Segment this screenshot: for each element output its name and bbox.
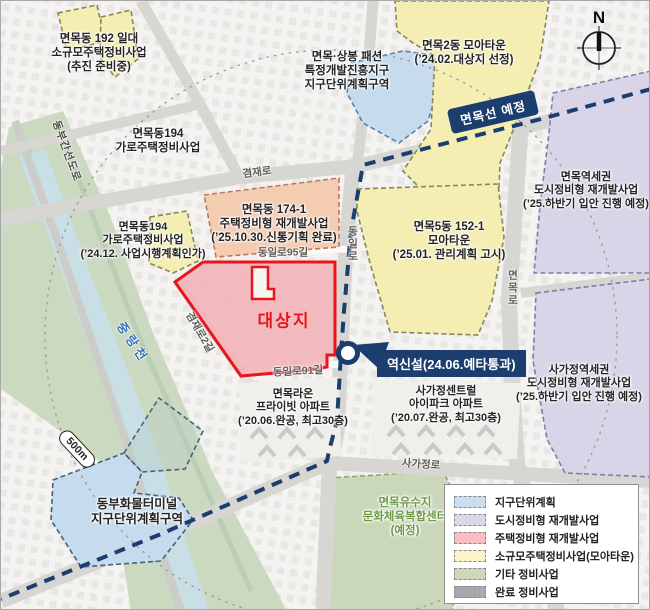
legend-label: 주택정비형 재개발사업 (495, 530, 599, 546)
legend-swatch (454, 514, 486, 526)
label-myeonmok-station-redev: 면목역세권도시정비형 재개발사업(’25.하반기 입안 진행 예정) (523, 171, 649, 211)
legend-swatch (454, 496, 486, 508)
label-line: (예정) (363, 524, 448, 538)
label-myeonmok194-b: 면목동194가로주택정비사업(’24.12. 사업시행계획인가) (81, 221, 206, 261)
label-line: 면목동194 (116, 127, 201, 141)
compass-north-label: N (593, 8, 605, 28)
label-line: (’25.10.30.신통기획 완료) (211, 231, 337, 245)
label-myeonmok2-moatown: 면목2동 모아타운(’24.02.대상지 선정) (415, 39, 514, 67)
label-line: (’25.01. 관리계획 고시) (393, 248, 506, 262)
label-line: (’20.07.완공, 최고30층) (391, 412, 501, 425)
label-line: 지구단위계획구역 (91, 512, 183, 527)
legend-label: 기타 정비사업 (495, 566, 559, 582)
label-line: 면목동 192 일대 (51, 32, 146, 46)
target-site-label: 대상지 (258, 307, 311, 332)
label-line: 사가정역세권 (516, 364, 642, 377)
legend: 지구단위계획도시정비형 재개발사업주택정비형 재개발사업소규모주택정비사업(모아… (444, 484, 639, 604)
redevelopment-map: N 면목동 192 일대소규모주택정비사업(추진 준비중) 면목동194가로주택… (0, 0, 650, 610)
zone-yususji-park (328, 471, 457, 610)
legend-item: 기타 정비사업 (454, 565, 634, 583)
label-raon-apartment: 면목라온프라이빗 아파트(’20.06.완공, 최고30층) (238, 388, 348, 428)
label-line: (추진 준비중) (51, 60, 146, 74)
label-myeonmok5-moatown: 면목5동 152-1모아타운(’25.01. 관리계획 고시) (393, 220, 506, 262)
legend-label: 도시정비형 재개발사업 (495, 512, 599, 528)
label-line: 주택정비형 재개발사업 (211, 217, 337, 231)
label-line: 문화체육복합센터 (363, 510, 448, 524)
label-terminal-district: 동부화물터미널지구단위계획구역 (91, 497, 183, 528)
legend-list: 지구단위계획도시정비형 재개발사업주택정비형 재개발사업소규모주택정비사업(모아… (454, 493, 634, 601)
new-station-marker (339, 344, 358, 363)
label-line: 도시정비형 재개발사업 (516, 377, 642, 390)
label-line: 프라이빗 아파트 (238, 401, 348, 414)
label-myeonmok194: 면목동194가로주택정비사업 (116, 127, 201, 155)
label-line: 아이파크 아파트 (391, 398, 501, 411)
label-line: (’25.하반기 입안 진행 예정) (523, 198, 649, 211)
label-line: 가로주택정비사업 (81, 234, 206, 247)
label-line: 지구단위계획구역 (305, 78, 390, 92)
label-line: 면목5동 152-1 (393, 220, 506, 234)
label-line: (’24.12. 사업시행계획인가) (81, 248, 206, 261)
label-line: 면목동 174-1 (211, 203, 337, 217)
label-myeonmok192: 면목동 192 일대소규모주택정비사업(추진 준비중) (51, 32, 146, 74)
road-label-dongilro91gil: 동일로91길 (272, 362, 323, 380)
label-line: 사가정센트럴 (391, 385, 501, 398)
legend-item: 소규모주택정비사업(모아타운) (454, 547, 634, 565)
label-line: 모아타운 (393, 234, 506, 248)
label-line: 소규모주택정비사업 (51, 46, 146, 60)
label-line: 면목·상봉 패션 (305, 50, 390, 64)
road-label-dongilro: 동일로 (346, 225, 361, 263)
label-line: 도시정비형 재개발사업 (523, 184, 649, 197)
legend-item: 주택정비형 재개발사업 (454, 529, 634, 547)
legend-item: 완료 정비사업 (454, 583, 634, 601)
label-fashion-district: 면목·상봉 패션특정개발진흥지구지구단위계획구역 (305, 50, 390, 92)
legend-swatch (454, 550, 486, 562)
legend-swatch (454, 568, 486, 580)
label-line: 면목역세권 (523, 171, 649, 184)
label-sagajeong-station-redev: 사가정역세권도시정비형 재개발사업(’25.하반기 입안 진행 예정) (516, 364, 642, 404)
label-line: 특정개발진흥지구 (305, 64, 390, 78)
label-central-apartment: 사가정센트럴아이파크 아파트(’20.07.완공, 최고30층) (391, 385, 501, 425)
legend-label: 소규모주택정비사업(모아타운) (495, 548, 634, 564)
road-label-dongilro95gil: 동일로95길 (258, 245, 308, 260)
road-label-sagajeongro: 사가정로 (401, 455, 441, 473)
road-label-myeonmokro: 면목로 (506, 269, 521, 307)
legend-item: 도시정비형 재개발사업 (454, 511, 634, 529)
label-line: (’24.02.대상지 선정) (415, 53, 514, 67)
legend-swatch (454, 532, 486, 544)
label-line: 면목2동 모아타운 (415, 39, 514, 53)
legend-swatch (454, 586, 486, 598)
label-174-redev: 면목동 174-1주택정비형 재개발사업(’25.10.30.신통기획 완료) (211, 203, 337, 245)
new-station-badge: 역신설(24.06.예타통과) (377, 350, 526, 377)
legend-label: 완료 정비사업 (495, 584, 559, 600)
legend-label: 지구단위계획 (495, 494, 556, 510)
label-line: (’25.하반기 입안 진행 예정) (516, 391, 642, 404)
label-line: 동부화물터미널 (91, 497, 183, 512)
label-line: 가로주택정비사업 (116, 141, 201, 155)
label-line: 면목유수지 (363, 496, 448, 510)
label-line: (’20.06.완공, 최고30층) (238, 415, 348, 428)
label-yususji-center: 면목유수지문화체육복합센터(예정) (363, 496, 448, 538)
label-line: 면목라온 (238, 388, 348, 401)
legend-item: 지구단위계획 (454, 493, 634, 511)
label-line: 면목동194 (81, 221, 206, 234)
